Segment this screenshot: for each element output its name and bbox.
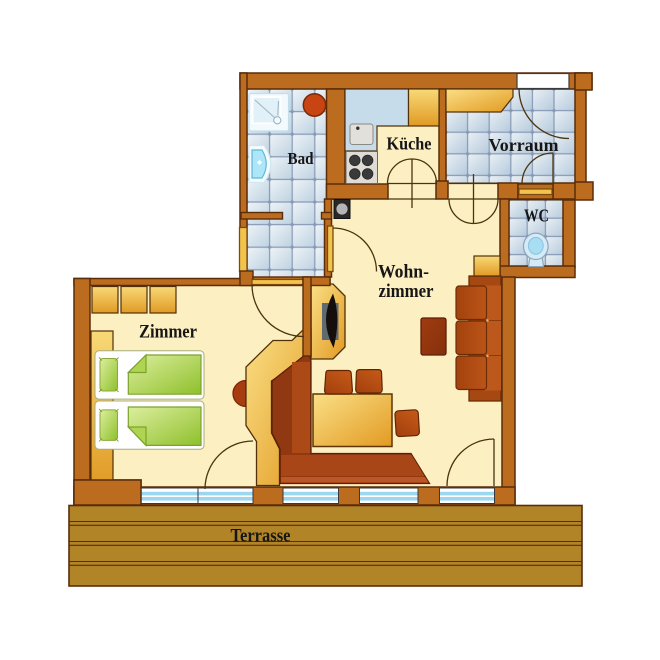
svg-text:Vorraum: Vorraum <box>489 135 559 155</box>
svg-text:zimmer: zimmer <box>379 281 434 302</box>
svg-text:Wohn-: Wohn- <box>378 262 429 283</box>
svg-text:WC: WC <box>524 206 549 226</box>
svg-text:Zimmer: Zimmer <box>139 322 197 343</box>
svg-text:Küche: Küche <box>387 134 432 154</box>
svg-text:Terrasse: Terrasse <box>231 526 291 547</box>
svg-text:Bad: Bad <box>288 149 314 168</box>
